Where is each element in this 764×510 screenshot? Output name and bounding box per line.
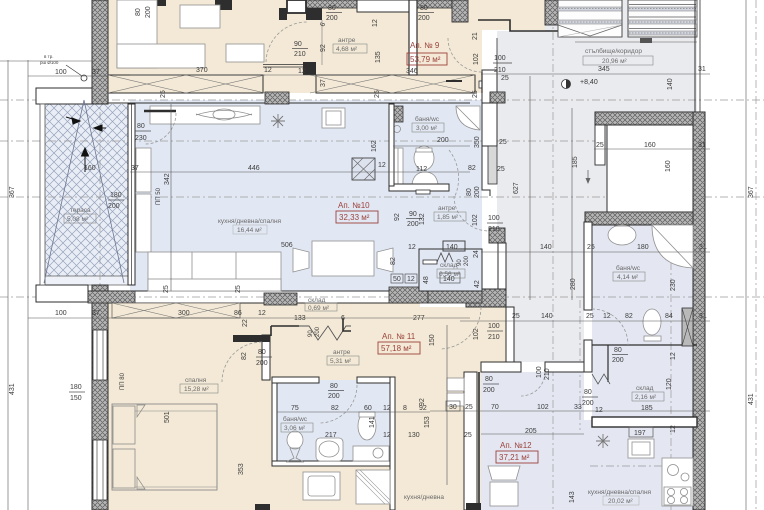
svg-text:210: 210 <box>494 67 506 74</box>
svg-text:342: 342 <box>164 173 171 185</box>
svg-text:ПП 50: ПП 50 <box>156 187 162 205</box>
svg-text:12: 12 <box>378 162 386 169</box>
svg-text:92: 92 <box>419 398 426 406</box>
svg-text:200: 200 <box>582 400 594 407</box>
svg-text:31: 31 <box>699 313 707 320</box>
svg-text:80: 80 <box>330 383 338 390</box>
svg-text:185: 185 <box>572 156 579 168</box>
svg-text:25: 25 <box>497 166 505 173</box>
svg-text:230: 230 <box>135 135 147 142</box>
svg-text:133: 133 <box>294 315 306 322</box>
svg-text:50: 50 <box>393 276 401 283</box>
svg-text:24: 24 <box>473 250 480 258</box>
svg-text:102: 102 <box>473 53 480 65</box>
svg-text:431: 431 <box>748 393 755 405</box>
svg-text:153: 153 <box>424 416 431 428</box>
svg-text:Ап. №10: Ап. №10 <box>338 201 370 210</box>
svg-text:345: 345 <box>598 66 610 73</box>
svg-text:2,16 м²: 2,16 м² <box>635 394 657 401</box>
svg-text:4,14 м²: 4,14 м² <box>617 274 639 281</box>
svg-text:140: 140 <box>541 313 553 320</box>
svg-text:12: 12 <box>408 244 416 251</box>
svg-text:15,28 м²: 15,28 м² <box>184 386 210 393</box>
svg-text:33: 33 <box>574 404 582 411</box>
svg-text:90: 90 <box>409 211 417 218</box>
svg-text:75: 75 <box>291 405 299 412</box>
svg-text:5,31 м²: 5,31 м² <box>330 358 352 365</box>
svg-text:25: 25 <box>374 90 381 98</box>
svg-text:82: 82 <box>390 257 397 265</box>
svg-text:0,69 м²: 0,69 м² <box>308 305 330 312</box>
svg-text:в тр.: в тр. <box>44 54 53 59</box>
svg-text:80: 80 <box>584 389 592 396</box>
svg-text:5,08 м²: 5,08 м² <box>67 216 89 223</box>
svg-text:100: 100 <box>488 215 500 222</box>
svg-text:16,44 м²: 16,44 м² <box>237 227 263 234</box>
svg-text:300: 300 <box>178 310 190 317</box>
svg-text:210: 210 <box>294 51 306 58</box>
svg-text:12: 12 <box>298 68 306 75</box>
svg-text:70: 70 <box>491 404 499 411</box>
svg-text:353: 353 <box>238 463 245 475</box>
svg-text:12: 12 <box>258 310 266 317</box>
svg-text:32,33 м²: 32,33 м² <box>339 213 370 222</box>
svg-text:25: 25 <box>163 285 170 293</box>
svg-text:20,02 м²: 20,02 м² <box>608 498 634 505</box>
svg-text:197: 197 <box>634 430 646 437</box>
svg-text:12: 12 <box>670 352 677 360</box>
svg-text:100: 100 <box>55 69 67 76</box>
svg-text:80: 80 <box>485 376 493 383</box>
svg-text:80: 80 <box>258 349 266 356</box>
svg-text:140: 140 <box>667 78 674 90</box>
svg-text:37,21 м²: 37,21 м² <box>499 453 530 462</box>
svg-text:Ап. №12: Ап. №12 <box>500 441 532 450</box>
svg-text:25: 25 <box>499 139 507 146</box>
svg-text:446: 446 <box>248 165 260 172</box>
svg-text:25: 25 <box>235 285 242 293</box>
svg-text:200: 200 <box>108 203 120 210</box>
svg-text:210: 210 <box>488 226 500 233</box>
svg-text:162: 162 <box>371 140 378 152</box>
svg-text:627: 627 <box>513 182 520 194</box>
svg-text:склад: склад <box>440 262 458 269</box>
svg-text:37: 37 <box>320 79 327 87</box>
svg-text:25: 25 <box>512 313 520 320</box>
svg-text:25: 25 <box>465 404 473 411</box>
svg-text:120: 120 <box>666 378 673 390</box>
svg-text:25: 25 <box>587 244 595 251</box>
svg-text:346: 346 <box>406 68 418 75</box>
svg-text:6: 6 <box>341 315 345 322</box>
svg-text:100: 100 <box>488 323 500 330</box>
svg-text:25: 25 <box>501 75 509 82</box>
svg-text:22: 22 <box>242 319 249 327</box>
svg-text:501: 501 <box>164 411 171 423</box>
svg-text:90: 90 <box>294 41 302 48</box>
svg-text:82: 82 <box>468 165 476 172</box>
svg-text:склад: склад <box>636 385 654 392</box>
svg-text:367: 367 <box>748 186 755 198</box>
svg-text:160: 160 <box>84 165 96 172</box>
svg-text:антре: антре <box>333 349 351 356</box>
svg-text:150: 150 <box>429 334 436 346</box>
svg-text:31: 31 <box>698 66 706 73</box>
svg-text:130: 130 <box>408 432 420 439</box>
svg-text:кухня/дневна: кухня/дневна <box>404 494 444 501</box>
svg-text:48: 48 <box>423 276 430 284</box>
svg-text:20,96 м²: 20,96 м² <box>602 58 628 65</box>
svg-text:25: 25 <box>586 313 594 320</box>
svg-text:12: 12 <box>264 67 272 74</box>
svg-text:кухня/дневна/спалня: кухня/дневна/спалня <box>218 218 282 225</box>
svg-text:12: 12 <box>595 407 603 414</box>
svg-text:102: 102 <box>472 214 479 226</box>
svg-text:200: 200 <box>464 255 470 266</box>
svg-text:90: 90 <box>457 259 463 266</box>
svg-text:150: 150 <box>70 395 82 402</box>
svg-text:100: 100 <box>55 310 67 317</box>
svg-text:82: 82 <box>241 352 248 360</box>
svg-text:37: 37 <box>92 310 100 317</box>
svg-text:370: 370 <box>196 67 208 74</box>
svg-text:ПП 80: ПП 80 <box>120 372 126 390</box>
svg-text:8: 8 <box>403 405 407 412</box>
svg-text:12: 12 <box>670 425 677 433</box>
svg-text:12: 12 <box>372 19 379 27</box>
svg-text:30: 30 <box>449 404 457 411</box>
svg-text:60: 60 <box>364 405 372 412</box>
svg-text:53,79 м²: 53,79 м² <box>410 55 441 64</box>
svg-text:80: 80 <box>137 123 145 130</box>
svg-text:92: 92 <box>320 44 327 52</box>
svg-text:506: 506 <box>281 242 293 249</box>
svg-text:200: 200 <box>328 393 340 400</box>
svg-text:180: 180 <box>70 384 82 391</box>
svg-text:200: 200 <box>474 186 481 198</box>
svg-text:антре: антре <box>438 205 456 212</box>
svg-text:80: 80 <box>614 347 622 354</box>
svg-text:200: 200 <box>483 387 495 394</box>
svg-text:57,18 м²: 57,18 м² <box>381 344 412 353</box>
svg-text:баня/wc: баня/wc <box>616 264 641 272</box>
svg-text:200: 200 <box>437 137 449 144</box>
svg-text:12: 12 <box>407 276 415 283</box>
svg-text:25: 25 <box>464 432 472 439</box>
svg-text:12: 12 <box>383 432 391 439</box>
svg-text:90: 90 <box>308 330 314 337</box>
svg-text:200: 200 <box>418 15 430 22</box>
svg-text:140: 140 <box>540 244 552 251</box>
svg-text:100: 100 <box>536 366 543 378</box>
svg-text:31: 31 <box>699 244 707 251</box>
svg-text:140: 140 <box>446 244 458 251</box>
svg-text:210: 210 <box>544 368 551 380</box>
svg-text:31: 31 <box>698 142 706 149</box>
svg-text:+8,40: +8,40 <box>580 79 598 86</box>
svg-text:141: 141 <box>369 416 376 428</box>
svg-text:180: 180 <box>110 192 122 199</box>
svg-text:350: 350 <box>474 136 481 148</box>
svg-text:160: 160 <box>665 160 672 172</box>
svg-text:100: 100 <box>494 55 506 62</box>
svg-text:200: 200 <box>407 221 419 228</box>
svg-text:42: 42 <box>474 280 481 288</box>
svg-text:37: 37 <box>92 69 100 76</box>
svg-text:80: 80 <box>135 8 142 16</box>
svg-text:160: 160 <box>644 142 656 149</box>
svg-text:200: 200 <box>612 357 624 364</box>
svg-text:баня/wc: баня/wc <box>283 415 308 423</box>
svg-text:баня/wc: баня/wc <box>415 115 440 123</box>
svg-text:143: 143 <box>569 491 576 503</box>
svg-text:спалня: спалня <box>185 377 207 384</box>
svg-text:102: 102 <box>537 404 549 411</box>
svg-text:200: 200 <box>145 6 152 18</box>
svg-text:кухня/дневна/спалня: кухня/дневна/спалня <box>588 489 652 496</box>
svg-text:антре: антре <box>338 37 356 44</box>
svg-text:217: 217 <box>325 432 337 439</box>
svg-text:3,06 м²: 3,06 м² <box>284 425 306 432</box>
svg-text:4,68 м²: 4,68 м² <box>336 46 358 53</box>
svg-text:367: 367 <box>9 186 16 198</box>
svg-text:12: 12 <box>603 313 611 320</box>
svg-text:180: 180 <box>637 244 649 251</box>
svg-text:3,00 м²: 3,00 м² <box>416 125 438 132</box>
svg-text:80: 80 <box>420 5 428 12</box>
svg-text:25: 25 <box>596 142 604 149</box>
svg-text:230: 230 <box>670 279 677 291</box>
svg-text:431: 431 <box>9 383 16 395</box>
svg-text:1,85 м²: 1,85 м² <box>437 214 459 221</box>
svg-text:200: 200 <box>326 15 338 22</box>
svg-text:80: 80 <box>466 188 473 196</box>
svg-text:92: 92 <box>394 213 401 221</box>
svg-text:200: 200 <box>315 326 321 337</box>
svg-text:тераса: тераса <box>70 207 91 214</box>
svg-text:82: 82 <box>331 405 339 412</box>
svg-text:200: 200 <box>256 360 268 367</box>
svg-text:132: 132 <box>419 213 426 225</box>
svg-text:86: 86 <box>234 310 242 317</box>
svg-text:82: 82 <box>625 313 633 320</box>
svg-text:140: 140 <box>443 276 455 283</box>
svg-text:102: 102 <box>473 328 480 340</box>
svg-text:Ап. № 9: Ап. № 9 <box>410 41 440 50</box>
svg-text:37: 37 <box>131 165 139 172</box>
svg-text:80: 80 <box>328 5 336 12</box>
svg-text:25: 25 <box>160 90 167 98</box>
svg-text:стълбище/коридор: стълбище/коридор <box>585 47 642 55</box>
svg-text:Ап. № 11: Ап. № 11 <box>382 332 416 341</box>
svg-text:25: 25 <box>472 90 479 98</box>
svg-text:277: 277 <box>413 315 425 322</box>
svg-text:135: 135 <box>375 51 382 63</box>
svg-text:21: 21 <box>472 32 479 40</box>
svg-text:280: 280 <box>570 278 577 290</box>
svg-text:84: 84 <box>665 313 673 320</box>
svg-text:12: 12 <box>383 405 391 412</box>
svg-text:210: 210 <box>488 334 500 341</box>
